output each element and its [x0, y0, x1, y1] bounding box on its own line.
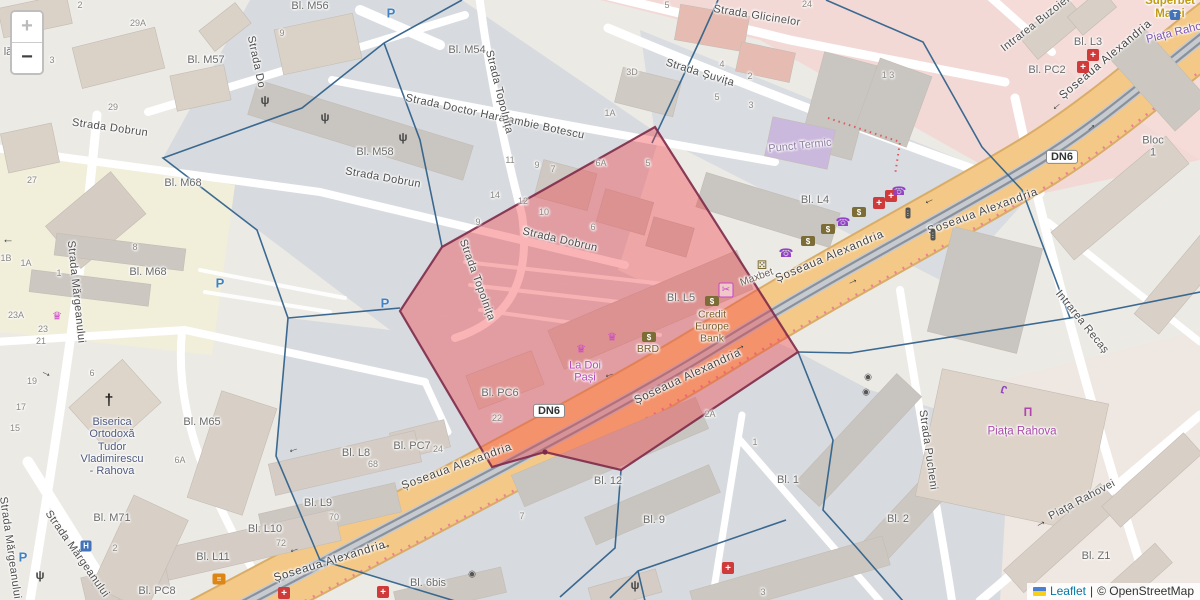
zoom-in-button[interactable]: + [12, 12, 42, 43]
map-canvas[interactable]: Strada GlicinelorStrada ȘuvițaStrada Doc… [0, 0, 1200, 600]
polygon-vertex[interactable] [542, 449, 547, 454]
leaflet-link[interactable]: Leaflet [1050, 584, 1086, 598]
zoom-control: + − [10, 10, 44, 75]
map-tiles [0, 0, 1200, 600]
ukraine-flag-icon [1033, 587, 1046, 596]
attribution-bar: Leaflet | © OpenStreetMap [1027, 583, 1200, 600]
attribution-separator: | [1090, 584, 1093, 598]
zoom-out-button[interactable]: − [12, 43, 42, 73]
church-building [69, 359, 161, 450]
osm-credit[interactable]: © OpenStreetMap [1097, 584, 1194, 598]
